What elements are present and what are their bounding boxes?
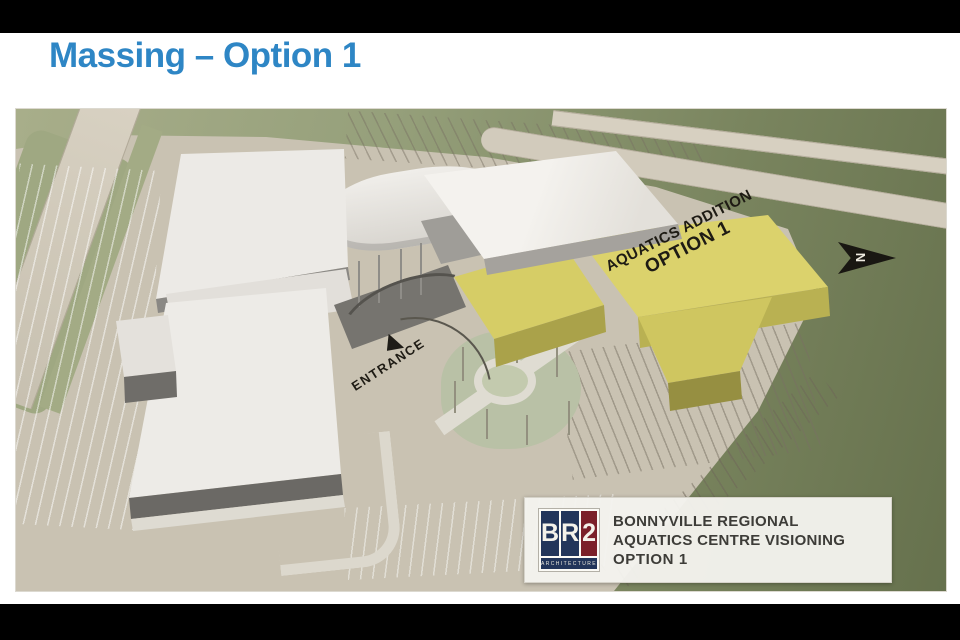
logo-architecture-label: ARCHITECTURE <box>541 558 597 569</box>
massing-rendering: AQUATICS ADDITION OPTION 1 ENTRANCE N B … <box>15 108 947 592</box>
light-pole <box>568 401 570 435</box>
north-arrow-icon: N <box>838 237 896 279</box>
logo-letter-r: R <box>561 511 579 556</box>
bottom-letterbox <box>0 604 960 640</box>
br2-logo: B R 2 ARCHITECTURE <box>538 508 600 572</box>
project-title-block: B R 2 ARCHITECTURE BONNYVILLE REGIONAL A… <box>524 497 892 583</box>
light-pole <box>526 415 528 445</box>
slide-viewer: { "slide": { "title": "Massing – Option … <box>0 0 960 640</box>
project-line-1: BONNYVILLE REGIONAL <box>613 513 845 530</box>
logo-letter-2: 2 <box>581 511 597 556</box>
north-label: N <box>853 253 868 262</box>
top-letterbox <box>0 0 960 33</box>
project-title-lines: BONNYVILLE REGIONAL AQUATICS CENTRE VISI… <box>613 513 845 568</box>
page-title: Massing – Option 1 <box>49 36 361 76</box>
logo-letter-b: B <box>541 511 559 556</box>
project-line-2: AQUATICS CENTRE VISIONING <box>613 532 845 549</box>
project-line-3: OPTION 1 <box>613 551 845 568</box>
